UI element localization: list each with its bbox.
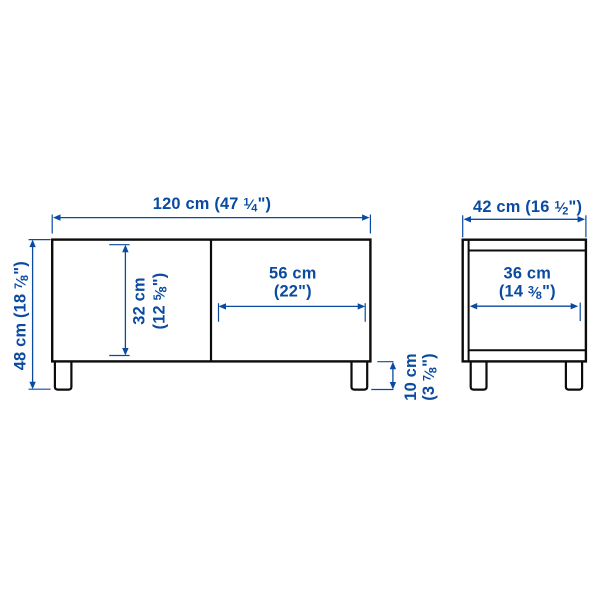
- svg-text:42 cm (16 1⁄2"): 42 cm (16 1⁄2"): [473, 198, 582, 217]
- svg-text:36 cm: 36 cm: [504, 264, 551, 282]
- svg-text:(3 7⁄8"): (3 7⁄8"): [420, 353, 439, 401]
- svg-text:120 cm (47 1⁄4"): 120 cm (47 1⁄4"): [153, 195, 271, 214]
- svg-text:(22"): (22"): [274, 283, 312, 301]
- svg-text:(14 3⁄8"): (14 3⁄8"): [499, 283, 556, 302]
- svg-text:32 cm: 32 cm: [130, 277, 148, 324]
- svg-text:(12 5⁄8"): (12 5⁄8"): [150, 273, 169, 330]
- svg-text:56 cm: 56 cm: [269, 264, 316, 282]
- svg-text:10 cm: 10 cm: [402, 353, 420, 400]
- svg-text:48 cm (18 7⁄8"): 48 cm (18 7⁄8"): [12, 261, 31, 370]
